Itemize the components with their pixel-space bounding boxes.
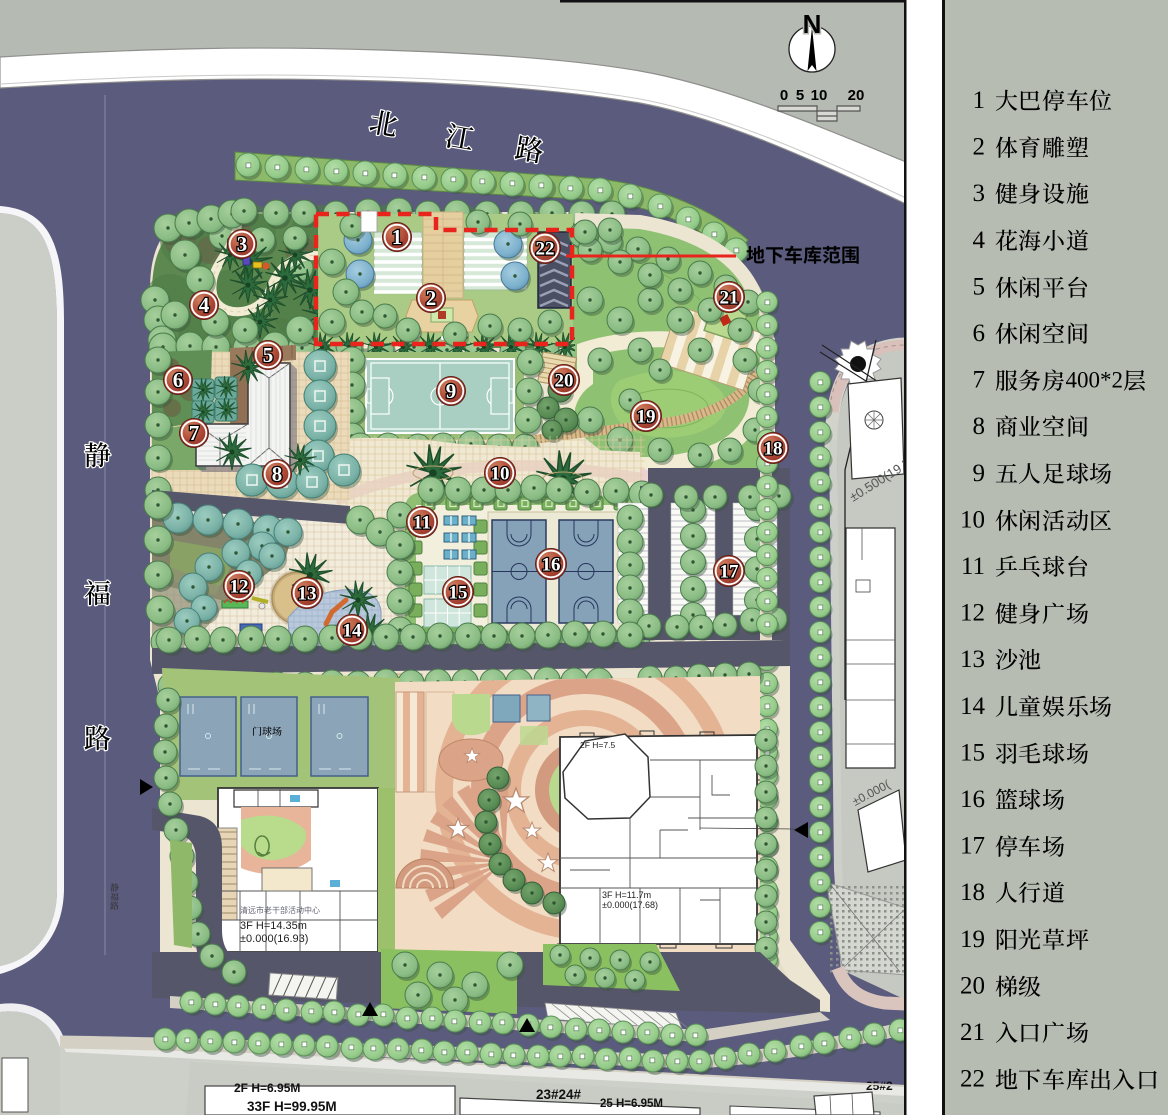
svg-text:5: 5 xyxy=(973,273,986,300)
svg-text:15: 15 xyxy=(960,739,985,766)
svg-text:±0.000(16.93): ±0.000(16.93) xyxy=(240,933,308,945)
svg-text:22: 22 xyxy=(536,238,555,259)
svg-text:400*2: 400*2 xyxy=(1066,368,1124,393)
svg-text:18: 18 xyxy=(960,879,985,906)
svg-text:12: 12 xyxy=(960,600,985,627)
svg-text:3F H=14.35m: 3F H=14.35m xyxy=(240,920,307,932)
svg-text:18: 18 xyxy=(764,438,783,459)
svg-text:0: 0 xyxy=(780,87,788,104)
svg-text:2F H=7.5: 2F H=7.5 xyxy=(580,740,615,750)
svg-text:17: 17 xyxy=(960,833,985,860)
svg-text:3F H=11.7m: 3F H=11.7m xyxy=(602,890,651,900)
svg-text:20: 20 xyxy=(555,370,574,391)
svg-text:4: 4 xyxy=(973,227,986,254)
svg-text:10: 10 xyxy=(811,87,828,104)
svg-text:13: 13 xyxy=(960,646,985,673)
svg-text:13: 13 xyxy=(298,583,317,604)
svg-text:10: 10 xyxy=(491,463,510,484)
svg-text:25 H=6.95M: 25 H=6.95M xyxy=(600,1098,663,1110)
svg-text:7: 7 xyxy=(973,367,986,394)
svg-text:7: 7 xyxy=(189,421,200,445)
svg-text:9: 9 xyxy=(973,460,986,487)
svg-text:20: 20 xyxy=(848,87,865,104)
svg-text:33F H=99.95M: 33F H=99.95M xyxy=(247,1099,337,1114)
svg-text:±0.000(17.68): ±0.000(17.68) xyxy=(602,900,658,910)
svg-text:11: 11 xyxy=(413,512,431,533)
svg-text:16: 16 xyxy=(960,786,985,813)
svg-text:2: 2 xyxy=(973,134,986,161)
svg-text:9: 9 xyxy=(446,379,457,403)
svg-text:3: 3 xyxy=(237,232,248,256)
svg-text:N: N xyxy=(803,9,822,39)
svg-text:5: 5 xyxy=(796,87,804,104)
svg-text:4: 4 xyxy=(199,293,210,317)
svg-text:6: 6 xyxy=(973,320,986,347)
svg-text:11: 11 xyxy=(961,553,985,580)
svg-text:17: 17 xyxy=(720,561,740,582)
svg-text:19: 19 xyxy=(637,406,656,427)
svg-text:21: 21 xyxy=(960,1019,985,1046)
svg-text:8: 8 xyxy=(973,413,986,440)
svg-text:8: 8 xyxy=(272,462,283,486)
svg-text:2: 2 xyxy=(426,286,437,310)
svg-text:14: 14 xyxy=(960,693,986,720)
svg-text:22: 22 xyxy=(960,1066,985,1093)
svg-text:23#24#: 23#24# xyxy=(536,1087,582,1102)
svg-text:12: 12 xyxy=(230,576,249,597)
svg-text:14: 14 xyxy=(343,620,363,641)
svg-text:6: 6 xyxy=(173,368,184,392)
svg-text:10: 10 xyxy=(960,506,985,533)
svg-text:15: 15 xyxy=(449,582,468,603)
svg-text:1: 1 xyxy=(392,225,403,249)
svg-text:21: 21 xyxy=(720,287,739,308)
svg-text:清远市老干部活动中心: 清远市老干部活动中心 xyxy=(240,905,320,915)
svg-text:3: 3 xyxy=(973,180,986,207)
svg-text:5: 5 xyxy=(263,343,274,367)
svg-text:16: 16 xyxy=(542,554,561,575)
svg-text:19: 19 xyxy=(960,926,985,953)
svg-text:1: 1 xyxy=(973,87,986,114)
svg-text:20: 20 xyxy=(960,972,985,999)
svg-text:2F H=6.95M: 2F H=6.95M xyxy=(234,1081,300,1095)
